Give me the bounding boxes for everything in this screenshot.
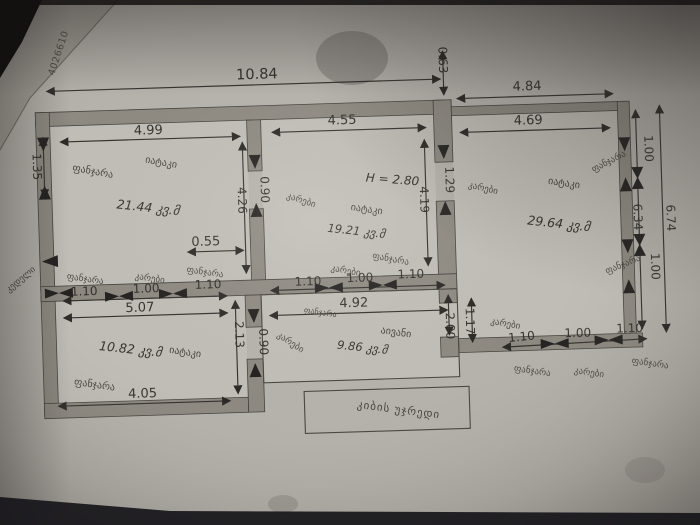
floor-plan-drawing: 10.84 4.99 4.55 4.84 4.69 0.63 1.35 4.26… <box>0 0 700 525</box>
smudge-top <box>316 31 388 85</box>
smudge-bottom <box>268 495 298 513</box>
left-shadow <box>0 0 70 525</box>
floor-plan-photo: 10.84 4.99 4.55 4.84 4.69 0.63 1.35 4.26… <box>0 0 700 525</box>
smudge-right <box>625 457 665 483</box>
dark-edge-top <box>0 0 700 5</box>
